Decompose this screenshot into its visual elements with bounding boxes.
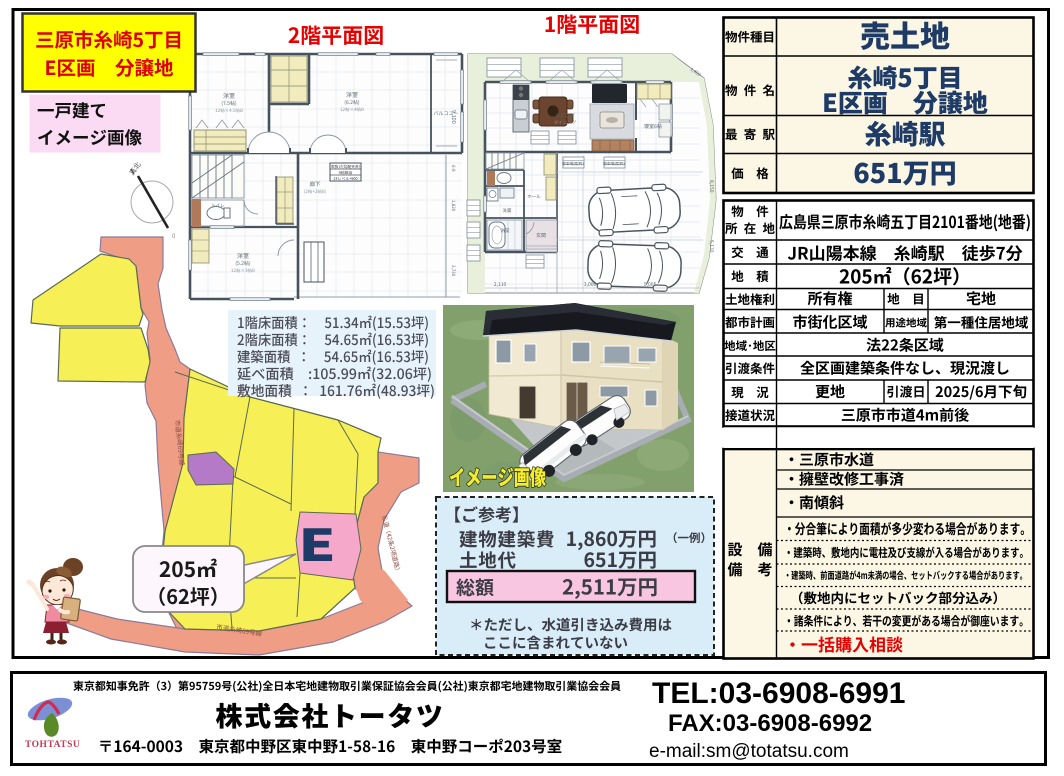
svg-text:FAX:03-6908-6992: FAX:03-6908-6992 bbox=[668, 710, 872, 737]
svg-text:TEL:03-6908-6991: TEL:03-6908-6991 bbox=[652, 677, 905, 710]
svg-text:TOHTATSU: TOHTATSU bbox=[25, 740, 80, 750]
svg-text:e-mail:sm@totatsu.com: e-mail:sm@totatsu.com bbox=[649, 741, 849, 762]
